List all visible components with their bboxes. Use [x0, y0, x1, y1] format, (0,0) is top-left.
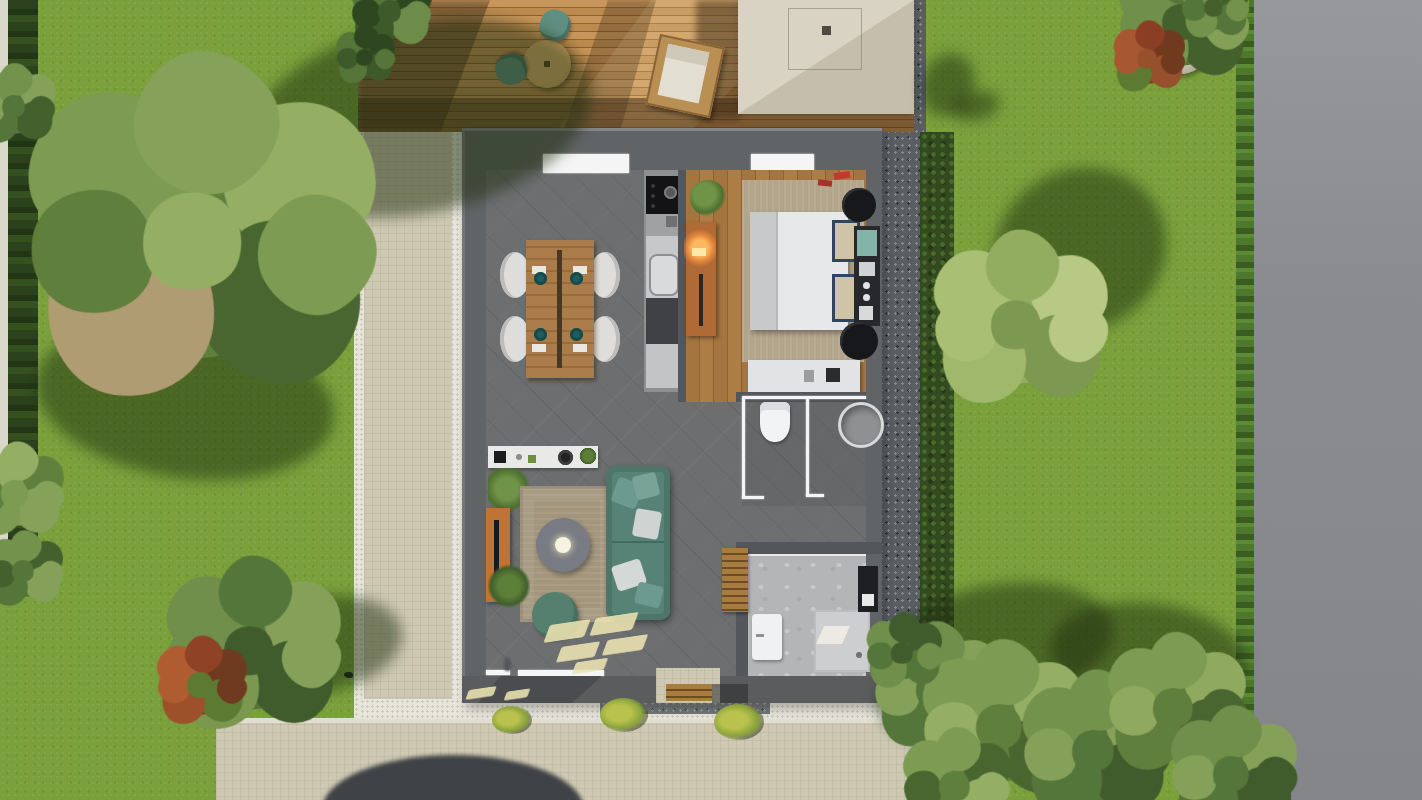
window-north-kitchen — [543, 154, 629, 173]
bedside-table-north — [842, 188, 876, 222]
gazebo-roof — [738, 0, 914, 114]
shower-tray — [814, 610, 870, 672]
toilet — [760, 402, 790, 442]
dining-chair-4 — [590, 316, 620, 362]
gazebo-finial — [822, 26, 831, 35]
bathroom-vanity — [752, 614, 782, 660]
entrance-doormat — [666, 684, 712, 701]
living-plant-south — [488, 564, 530, 608]
deck-chair-north — [536, 6, 574, 44]
bedroom-dresser — [748, 360, 860, 392]
kitchen-counter — [644, 170, 680, 392]
driveway — [216, 718, 944, 800]
coffee-table — [536, 518, 590, 572]
place-setting — [570, 272, 583, 285]
sofa-cushion — [632, 508, 662, 540]
place-setting — [570, 328, 583, 341]
window-south-living — [518, 670, 604, 676]
wc-partition-stub-1 — [742, 496, 764, 499]
wash-basin — [838, 402, 884, 448]
left-boundary-hedge — [8, 0, 38, 560]
bedroom-door-threshold — [686, 392, 736, 402]
headboard-console — [854, 226, 880, 326]
garden-floorplan-scene — [0, 0, 1422, 800]
place-setting — [534, 328, 547, 341]
bedroom-wardrobe — [686, 222, 716, 336]
bathroom-cabinet — [858, 566, 878, 612]
shelf-plant — [580, 448, 596, 464]
wall-shelf — [488, 446, 598, 468]
bed — [750, 212, 848, 330]
house — [462, 128, 882, 703]
pouf — [532, 592, 578, 638]
path-pedestal — [504, 658, 511, 671]
gazebo-skylight-outline — [788, 8, 862, 70]
cooktop — [646, 176, 678, 214]
sofa-cushion — [631, 471, 660, 500]
house-east-gravel — [878, 128, 924, 693]
road — [1252, 0, 1422, 800]
small-appliance — [666, 216, 677, 227]
roadside-hedge — [1236, 0, 1254, 800]
wc-partition-stub-2 — [806, 494, 824, 497]
wc-glass-partition-left — [742, 398, 745, 498]
sofa-cushion — [634, 581, 665, 609]
entrance-step-shadow — [712, 684, 748, 703]
wall-shower-north — [736, 542, 882, 554]
east-hedge — [920, 132, 954, 664]
bistro-table — [523, 40, 571, 88]
sofa — [606, 466, 670, 620]
bedside-table-south — [840, 322, 878, 360]
bird — [344, 672, 353, 678]
wood-towel-bench — [722, 548, 748, 612]
wall-kitchen-bedroom — [678, 170, 686, 402]
bedroom-plant — [690, 180, 726, 216]
dining-table — [526, 240, 594, 378]
place-setting — [534, 272, 547, 285]
speaker — [558, 450, 573, 465]
wc-glass-partition-mid — [806, 398, 809, 496]
kitchen-sink — [649, 254, 679, 296]
wc-partition-line-top — [742, 396, 866, 399]
garden-path — [364, 132, 452, 722]
dining-chair-3 — [590, 252, 620, 298]
